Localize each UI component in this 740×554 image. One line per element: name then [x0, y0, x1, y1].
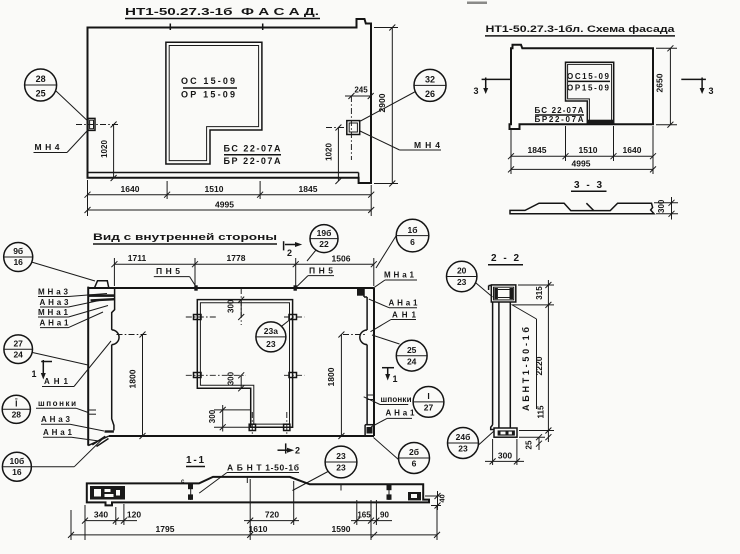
svg-text:1590: 1590 — [332, 524, 351, 534]
svg-text:1795: 1795 — [156, 524, 175, 534]
svg-text:МНа3: МНа3 — [38, 288, 69, 297]
svg-text:19б: 19б — [317, 228, 332, 238]
svg-text:1640: 1640 — [623, 145, 642, 155]
svg-text:16: 16 — [12, 467, 22, 477]
svg-text:шпонки: шпонки — [381, 395, 412, 404]
svg-text:АНа3: АНа3 — [41, 415, 71, 424]
svg-text:25: 25 — [525, 440, 534, 449]
svg-text:1778: 1778 — [227, 253, 246, 263]
svg-text:3-3: 3-3 — [574, 180, 602, 191]
svg-text:АНа1: АНа1 — [386, 409, 416, 418]
svg-text:АНа1: АНа1 — [389, 299, 419, 308]
svg-text:3: 3 — [474, 86, 479, 96]
svg-text:23а: 23а — [264, 326, 278, 336]
svg-text:1610: 1610 — [249, 524, 268, 534]
svg-text:1845: 1845 — [299, 184, 318, 194]
svg-text:24: 24 — [13, 349, 23, 359]
svg-text:2: 2 — [295, 446, 300, 456]
svg-text:НТ1-50.27.3-1бл. Схема фасада: НТ1-50.27.3-1бл. Схема фасада — [486, 24, 676, 35]
svg-text:1711: 1711 — [128, 253, 147, 263]
svg-text:АН1: АН1 — [392, 310, 417, 319]
svg-text:2220: 2220 — [534, 356, 544, 375]
svg-text:28: 28 — [12, 410, 22, 420]
svg-text:ОР 15-09: ОР 15-09 — [181, 90, 235, 100]
svg-text:26: 26 — [425, 89, 435, 99]
svg-text:27: 27 — [424, 403, 434, 413]
svg-text:1800: 1800 — [128, 369, 138, 388]
svg-text:40: 40 — [438, 494, 447, 502]
svg-text:АНа3: АНа3 — [40, 298, 70, 307]
svg-text:23: 23 — [336, 463, 346, 473]
svg-text:720: 720 — [265, 510, 279, 520]
svg-text:Вид с внутренней стороны: Вид с внутренней стороны — [93, 232, 277, 243]
svg-text:120: 120 — [127, 510, 141, 520]
svg-text:ОР15-09: ОР15-09 — [567, 84, 610, 93]
svg-text:1845: 1845 — [528, 145, 547, 155]
svg-text:115: 115 — [537, 405, 546, 418]
svg-text:1: 1 — [32, 369, 37, 379]
svg-text:А Б Н Т 1-50-1б: А Б Н Т 1-50-1б — [227, 463, 299, 473]
svg-text:90: 90 — [380, 511, 389, 520]
svg-text:2-2: 2-2 — [491, 253, 519, 264]
svg-text:27: 27 — [13, 338, 23, 348]
svg-text:6: 6 — [410, 237, 415, 247]
svg-text:АНа1: АНа1 — [40, 319, 70, 328]
svg-text:340: 340 — [94, 510, 108, 520]
svg-text:ОС 15-09: ОС 15-09 — [181, 76, 235, 86]
svg-text:32: 32 — [425, 74, 435, 84]
svg-text:МНа1: МНа1 — [38, 308, 69, 317]
svg-text:АН1: АН1 — [44, 377, 69, 386]
svg-text:28: 28 — [36, 74, 46, 84]
svg-text:6: 6 — [412, 459, 417, 469]
svg-text:1020: 1020 — [100, 140, 109, 158]
svg-text:БС 22-07А: БС 22-07А — [224, 144, 282, 154]
svg-text:4995: 4995 — [572, 158, 591, 168]
svg-text:БР 22-07А: БР 22-07А — [224, 156, 282, 166]
svg-text:300: 300 — [498, 450, 512, 460]
svg-text:315: 315 — [535, 286, 544, 300]
svg-text:23: 23 — [266, 339, 276, 349]
svg-text:300: 300 — [208, 409, 217, 423]
svg-text:БР22-07А: БР22-07А — [535, 115, 584, 124]
svg-text:ПН5: ПН5 — [156, 266, 180, 276]
svg-text:1: 1 — [393, 374, 398, 384]
svg-text:1800: 1800 — [326, 367, 336, 386]
svg-text:9б: 9б — [13, 246, 23, 256]
svg-text:1-1: 1-1 — [186, 455, 204, 466]
svg-text:НТ1-50.27.3-1б Ф А С А Д.: НТ1-50.27.3-1б Ф А С А Д. — [125, 6, 319, 18]
svg-text:300: 300 — [657, 199, 666, 213]
svg-text:4995: 4995 — [215, 200, 234, 210]
svg-text:2650: 2650 — [655, 73, 665, 92]
svg-text:165: 165 — [357, 511, 371, 520]
svg-text:24б: 24б — [456, 432, 471, 442]
svg-text:23: 23 — [336, 451, 346, 461]
svg-text:1б: 1б — [408, 225, 418, 235]
svg-text:20: 20 — [457, 266, 467, 276]
svg-text:I: I — [427, 391, 429, 401]
svg-text:300: 300 — [227, 299, 236, 313]
svg-text:24: 24 — [407, 356, 417, 366]
svg-text:I: I — [15, 399, 17, 409]
svg-text:2900: 2900 — [377, 93, 387, 112]
svg-text:БС 22-07А: БС 22-07А — [535, 106, 584, 115]
svg-text:2б: 2б — [409, 447, 419, 457]
svg-text:25: 25 — [407, 345, 417, 355]
svg-text:16: 16 — [13, 257, 23, 267]
svg-text:МНа1: МНа1 — [384, 271, 415, 280]
svg-text:25: 25 — [36, 89, 46, 99]
svg-text:1640: 1640 — [121, 184, 140, 194]
svg-text:1510: 1510 — [205, 184, 224, 194]
svg-text:АНа1: АНа1 — [43, 428, 73, 437]
svg-text:шпонки: шпонки — [38, 399, 76, 408]
svg-text:ПН5: ПН5 — [309, 266, 333, 276]
svg-text:АБНТ1-50-1б: АБНТ1-50-1б — [521, 327, 531, 411]
svg-text:1020: 1020 — [325, 143, 334, 161]
svg-text:1510: 1510 — [579, 145, 598, 155]
svg-text:2: 2 — [287, 248, 292, 258]
svg-text:23: 23 — [457, 277, 467, 287]
svg-text:1506: 1506 — [332, 254, 351, 264]
svg-text:ОС15-09: ОС15-09 — [567, 72, 610, 81]
svg-text:23: 23 — [458, 444, 468, 454]
svg-text:300: 300 — [227, 371, 236, 385]
svg-text:22: 22 — [319, 239, 329, 249]
svg-text:3: 3 — [709, 86, 714, 96]
svg-text:МН4: МН4 — [35, 142, 60, 152]
svg-text:245: 245 — [354, 86, 368, 95]
svg-text:МН4: МН4 — [414, 140, 440, 150]
svg-text:10б: 10б — [10, 456, 25, 466]
